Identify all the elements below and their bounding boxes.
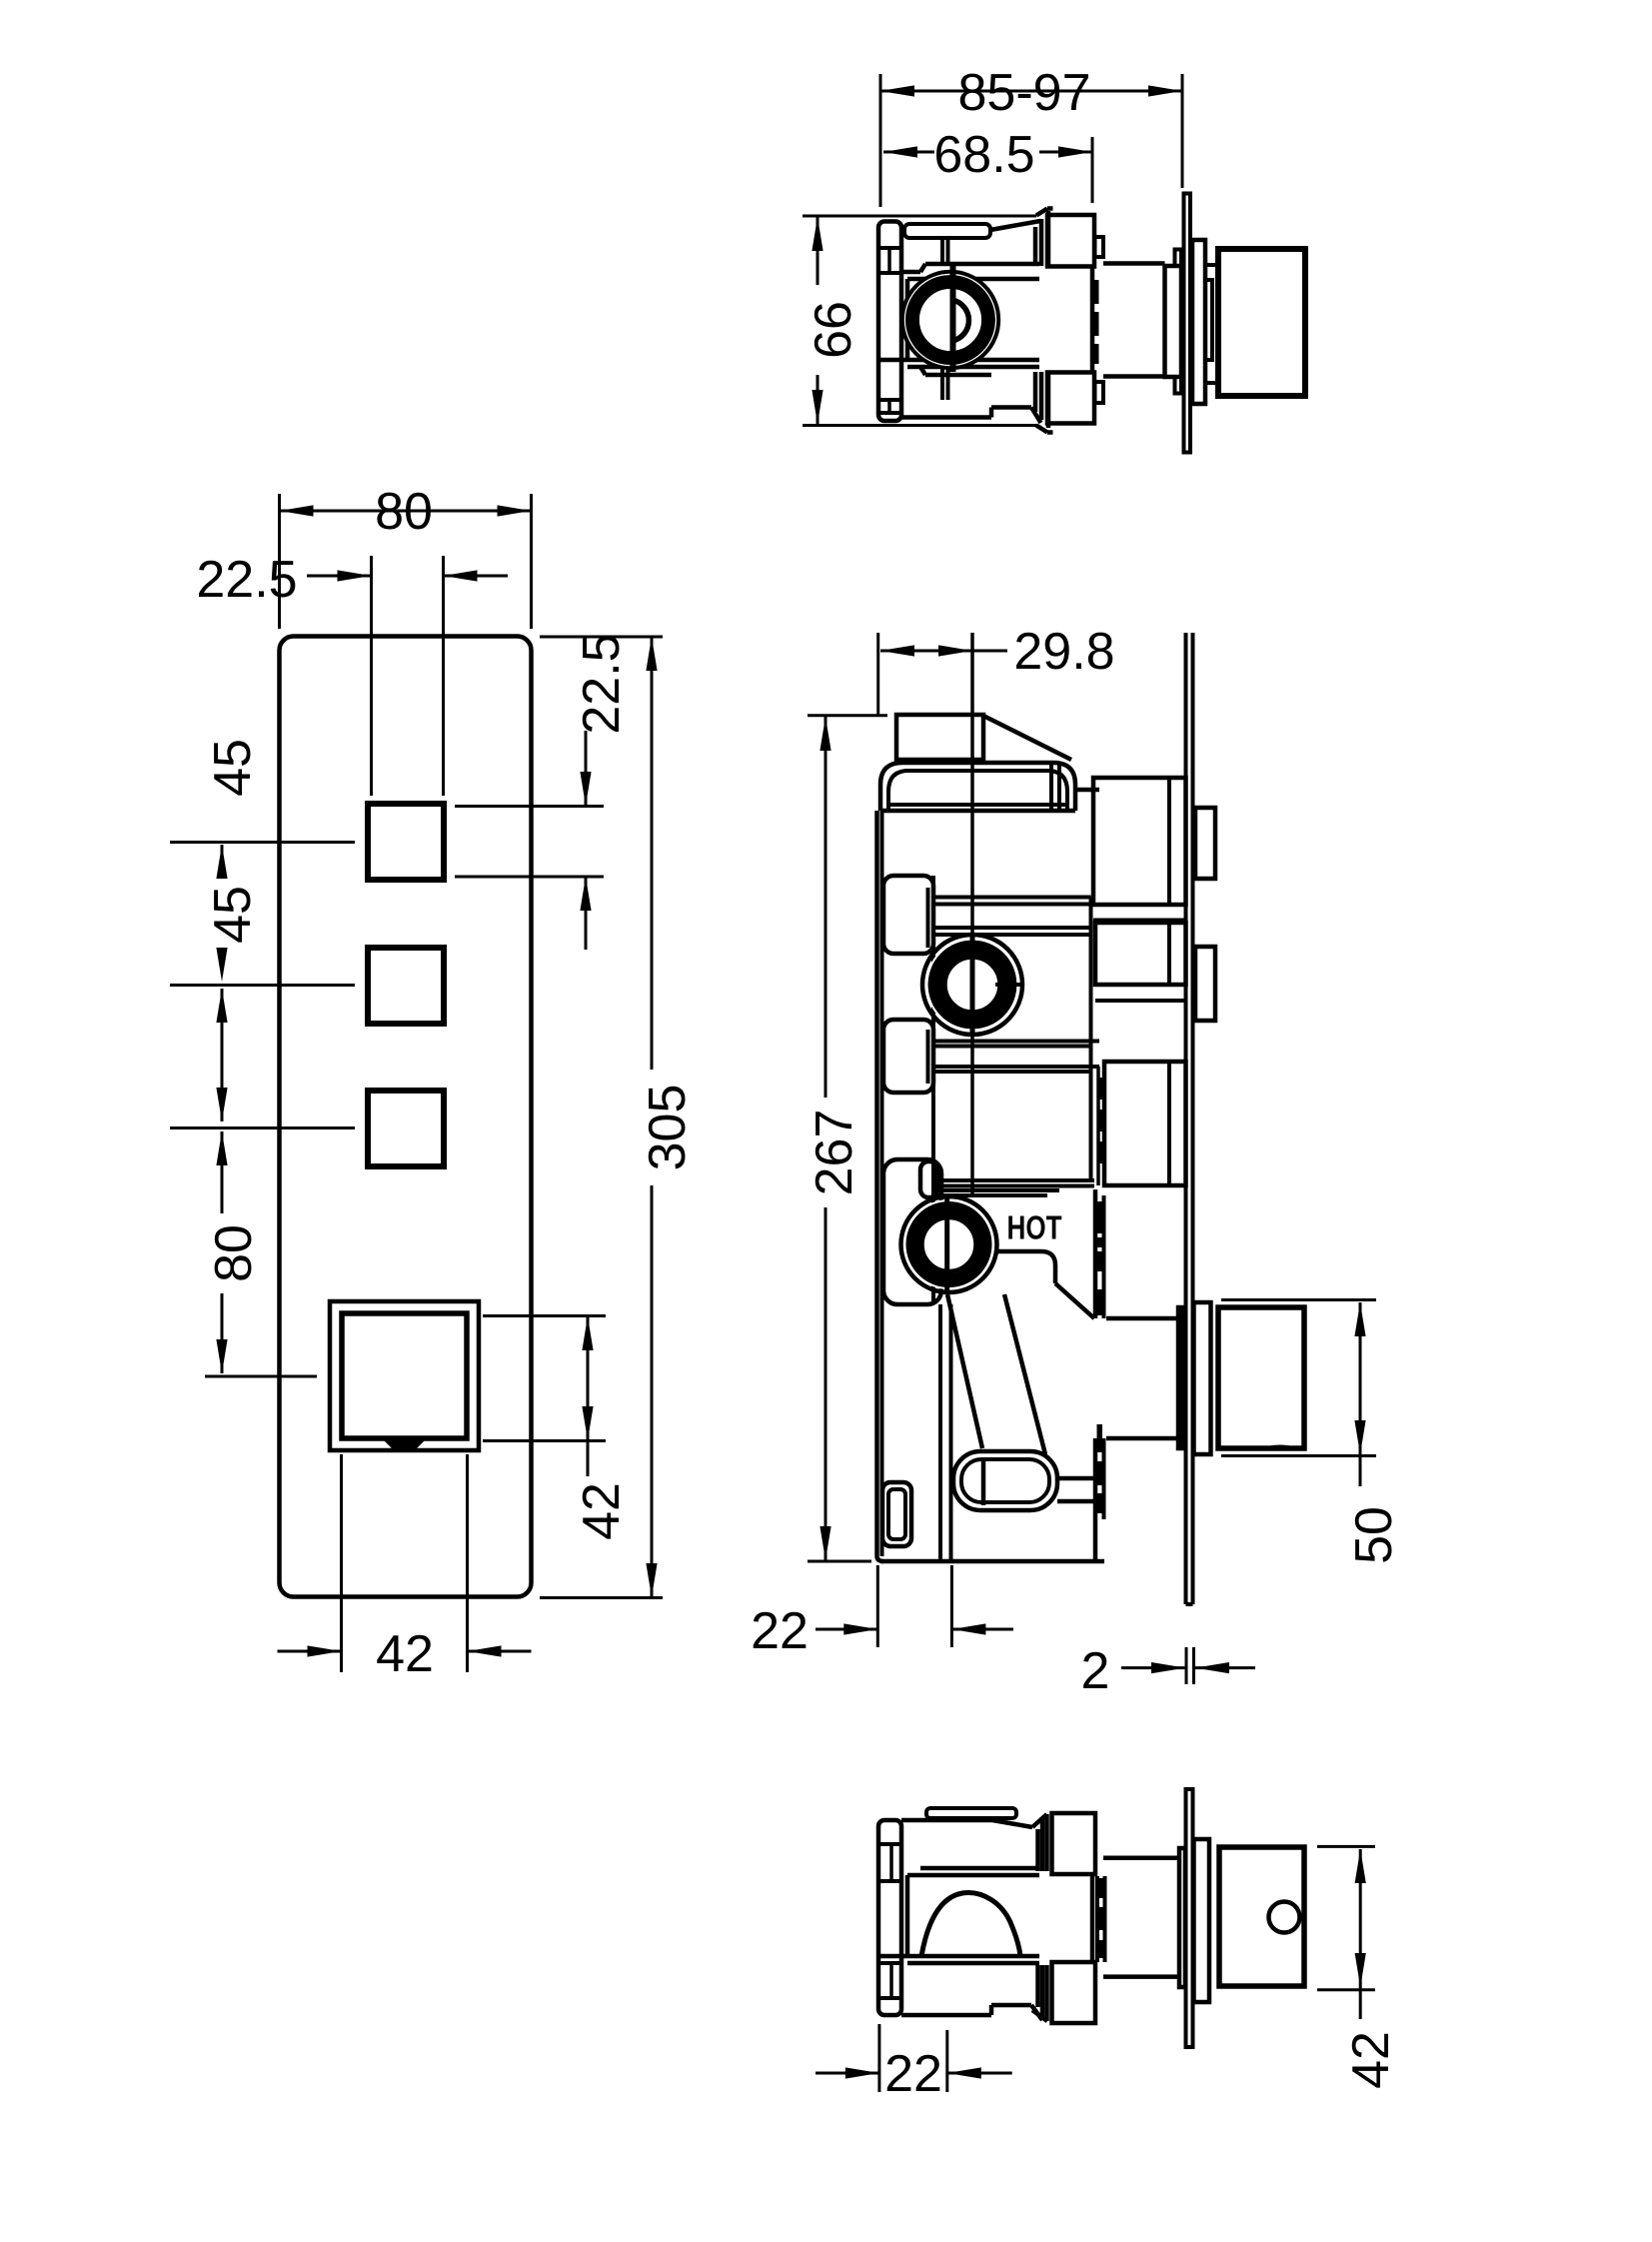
svg-text:22.5: 22.5 <box>573 633 631 734</box>
svg-text:45: 45 <box>204 739 262 797</box>
svg-text:42: 42 <box>1342 2031 1400 2089</box>
svg-text:66: 66 <box>805 301 862 359</box>
svg-text:267: 267 <box>806 1110 863 1196</box>
svg-text:22: 22 <box>884 2045 942 2103</box>
svg-text:29.8: 29.8 <box>1013 623 1114 681</box>
svg-text:80: 80 <box>375 483 433 541</box>
svg-text:50: 50 <box>1345 1506 1403 1564</box>
svg-text:42: 42 <box>573 1482 631 1540</box>
svg-text:45: 45 <box>204 886 262 944</box>
svg-text:2: 2 <box>1081 1642 1110 1700</box>
svg-text:80: 80 <box>205 1224 263 1282</box>
svg-text:305: 305 <box>639 1085 697 1171</box>
svg-text:68.5: 68.5 <box>933 126 1034 184</box>
svg-text:HOT: HOT <box>1007 1209 1062 1246</box>
svg-text:85-97: 85-97 <box>958 64 1091 122</box>
svg-text:22: 22 <box>751 1602 809 1660</box>
svg-text:22.5: 22.5 <box>196 551 297 609</box>
svg-text:42: 42 <box>376 1625 434 1683</box>
